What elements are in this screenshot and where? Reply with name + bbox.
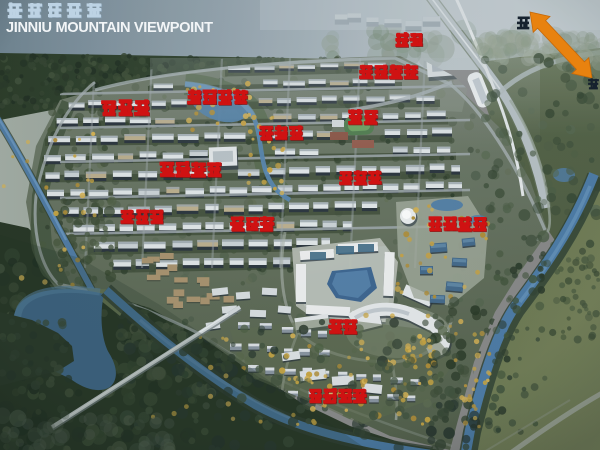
svg-text:JINNIU MOUNTAIN VIEWPOINT: JINNIU MOUNTAIN VIEWPOINT — [6, 20, 213, 36]
